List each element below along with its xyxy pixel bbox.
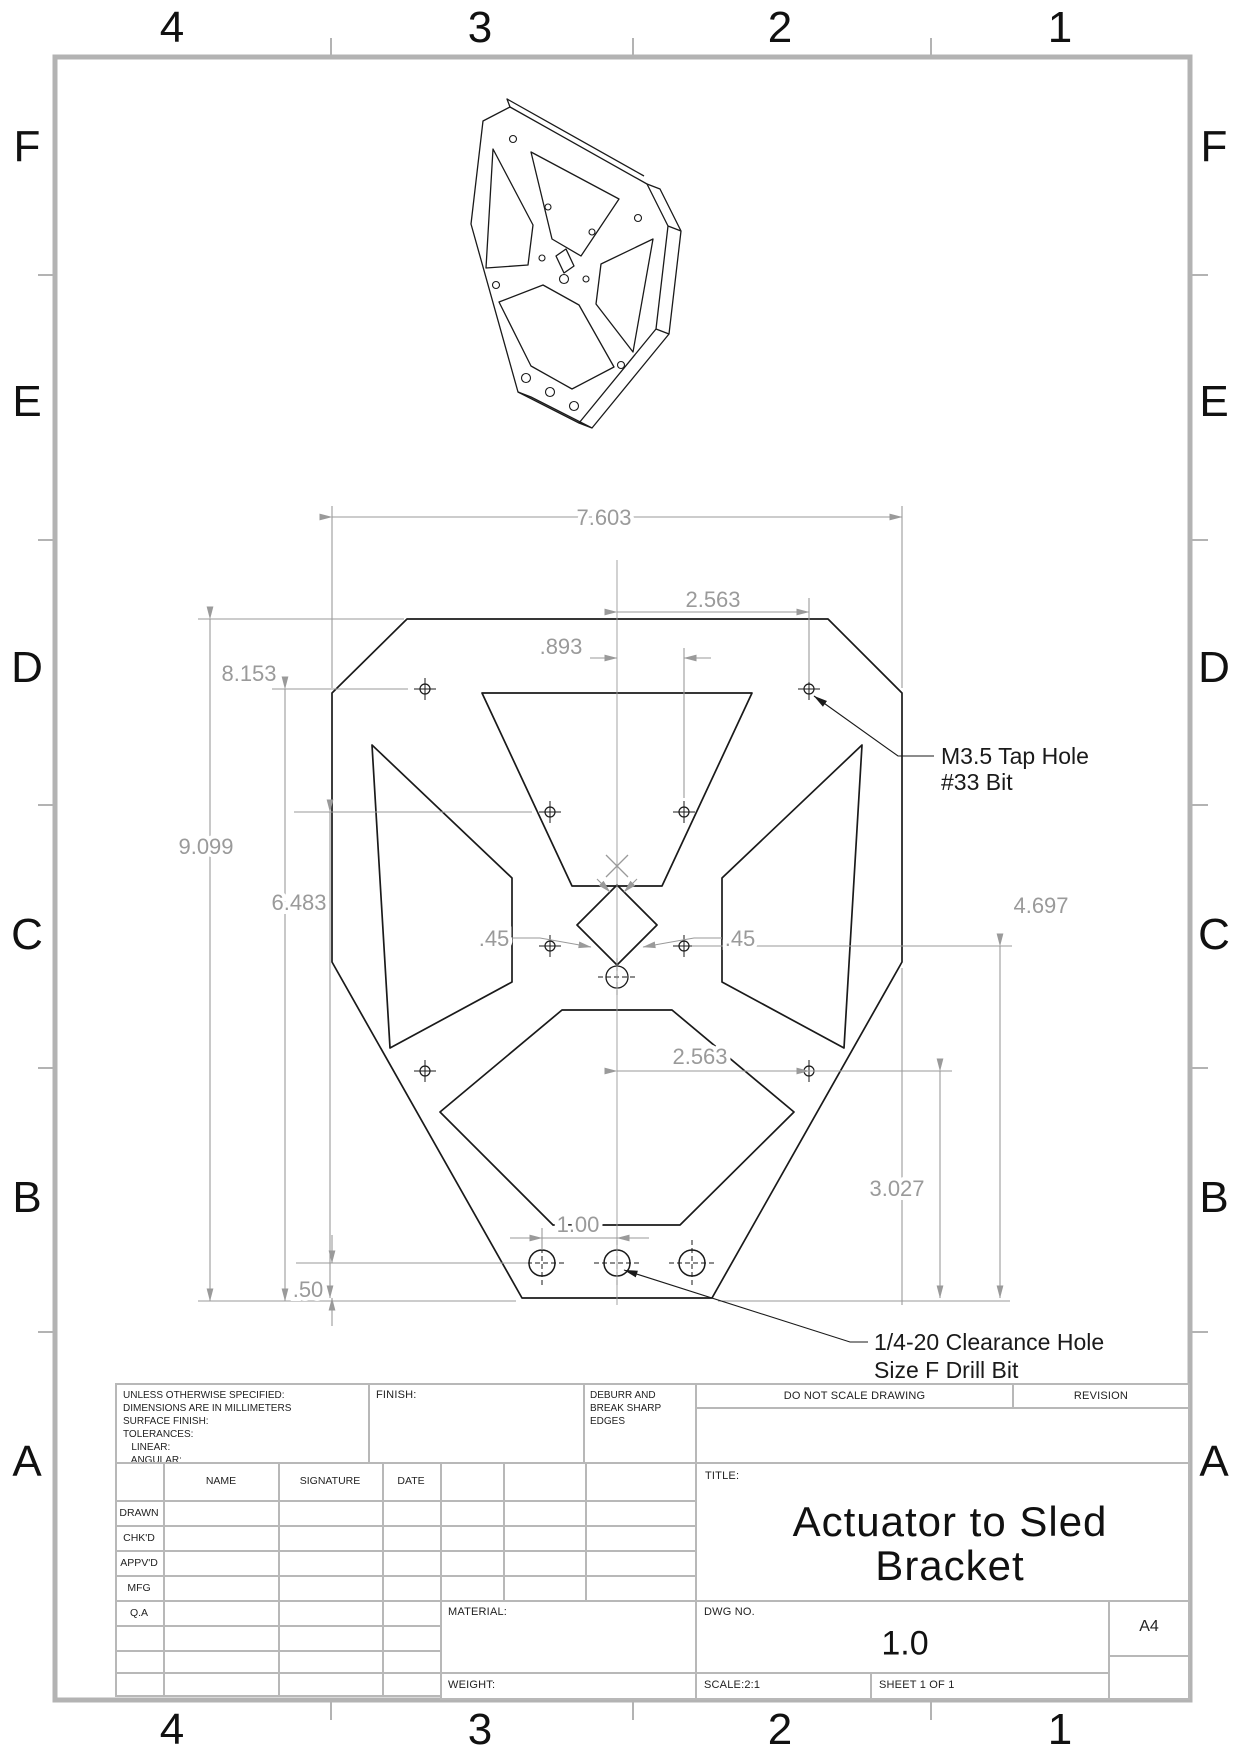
iso-thickness-edges [518,184,681,428]
engineering-drawing-sheet: { "grid": { "cols": ["4", "3", "2", "1"]… [0,0,1241,1754]
leader-lines [624,696,934,1342]
isometric-view [471,99,681,428]
note-texts: M3.5 Tap Hole #33 Bit 1/4-20 Clearance H… [874,743,1104,1383]
dim-tap-offset-top: 2.563 [685,587,740,612]
dimensions [198,506,1012,1326]
zone-row-f-left: F [14,122,41,172]
zone-row-b-right: B [1199,1173,1228,1223]
zone-col-3-top: 3 [468,3,492,53]
dim-height-right-inner: 4.697 [1013,893,1068,918]
tolerance-line2: DIMENSIONS ARE IN MILLIMETERS [123,1402,362,1415]
deburr-cell: DEBURR AND BREAK SHARP EDGES [583,1383,697,1464]
scale-cell: SCALE:2:1 [695,1672,872,1700]
tolerance-line1: UNLESS OTHERWISE SPECIFIED: [123,1389,362,1402]
drawing-title-line2: Bracket [875,1542,1024,1590]
dim-bottom-edge: .50 [293,1277,324,1302]
cutout-left [372,745,512,1048]
tolerance-cell: UNLESS OTHERWISE SPECIFIED: DIMENSIONS A… [115,1383,370,1464]
note-tap-line1: M3.5 Tap Hole [941,743,1089,769]
iso-back-edge [507,99,644,176]
dim-inner-offset: .893 [540,634,583,659]
scale-value: SCALE:2:1 [704,1679,760,1691]
weight-label: WEIGHT: [448,1679,495,1691]
zone-row-f-right: F [1201,122,1228,172]
iso-cutout-right [596,239,653,352]
row-qa-label: Q.A [130,1607,148,1619]
finish-label: FINISH: [376,1389,417,1401]
deburr-line2: BREAK SHARP [590,1402,690,1415]
zone-row-c-left: C [11,910,43,960]
zone-row-c-right: C [1198,910,1230,960]
zone-col-2-bottom: 2 [768,1705,792,1755]
iso-square-hole [556,249,574,273]
dim-tap-offset-bottom: 2.563 [672,1044,727,1069]
iso-outline [471,107,668,423]
deburr-line3: EDGES [590,1415,690,1428]
note-tap-line2: #33 Bit [941,769,1013,795]
note-clearance-line2: Size F Drill Bit [874,1357,1019,1383]
revision-empty-cell [695,1407,1190,1464]
title-label: TITLE: [705,1470,739,1482]
tolerance-line3: SURFACE FINISH: [123,1415,362,1428]
dwg-no-value: 1.0 [881,1625,928,1664]
dim-height-tap: 8.153 [221,661,276,686]
drawing-title-line1: Actuator to Sled [793,1498,1108,1546]
dim-height-overall: 9.099 [178,834,233,859]
zone-col-2-top: 2 [768,3,792,53]
header-date: DATE [397,1475,424,1487]
zone-row-a-left: A [12,1437,41,1487]
note-clearance-line1: 1/4-20 Clearance Hole [874,1329,1104,1355]
zone-col-3-bottom: 3 [468,1705,492,1755]
revision-cell: REVISION [1012,1383,1190,1409]
iso-cutout-top [531,152,619,256]
sheet-cell: SHEET 1 OF 1 [870,1672,1110,1700]
paper-size-empty [1108,1655,1190,1700]
tolerance-line4: TOLERANCES: [123,1428,362,1441]
dim-hole-pitch: 1.00 [557,1212,600,1237]
header-signature: SIGNATURE [300,1475,360,1487]
finish-cell: FINISH: [368,1383,585,1464]
dim-square-right: .45 [725,926,756,951]
zone-col-4-top: 4 [160,3,184,53]
row-appvd-label: APPV'D [120,1557,158,1569]
dimension-texts: 7.603 2.563 .893 8.153 9.099 6.483 .45 .… [178,505,1068,1302]
revision-label: REVISION [1074,1390,1128,1402]
zone-row-a-right: A [1199,1437,1228,1487]
row-mfg-label: MFG [127,1582,150,1594]
row-chkd-label: CHK'D [123,1532,155,1544]
zone-col-1-top: 1 [1048,3,1072,53]
weight-cell: WEIGHT: [440,1672,697,1700]
row-drawn-label: DRAWN [119,1507,158,1519]
zone-row-e-right: E [1199,377,1228,427]
header-name: NAME [206,1475,236,1487]
zone-col-4-bottom: 4 [160,1705,184,1755]
zone-col-1-bottom: 1 [1048,1705,1072,1755]
paper-size-value: A4 [1139,1618,1159,1636]
dim-height-inner: 6.483 [271,890,326,915]
iso-cutout-left [486,149,533,268]
dim-overall-width: 7.603 [576,505,631,530]
zone-row-e-left: E [12,377,41,427]
zone-row-d-right: D [1198,643,1230,693]
zone-row-b-left: B [12,1173,41,1223]
dwg-no-label: DWG NO. [704,1606,755,1618]
tolerance-line5: LINEAR: [123,1441,362,1454]
do-not-scale-label: DO NOT SCALE DRAWING [784,1390,926,1402]
material-label: MATERIAL: [448,1606,507,1618]
sheet-value: SHEET 1 OF 1 [879,1679,955,1691]
material-cell: MATERIAL: [440,1600,697,1674]
iso-holes [493,136,642,411]
deburr-line1: DEBURR AND [590,1389,690,1402]
cutout-right [722,745,862,1048]
dim-height-right-tap: 3.027 [869,1176,924,1201]
zone-row-d-left: D [11,643,43,693]
dim-square-left: .45 [479,926,510,951]
do-not-scale-cell: DO NOT SCALE DRAWING [695,1383,1014,1409]
